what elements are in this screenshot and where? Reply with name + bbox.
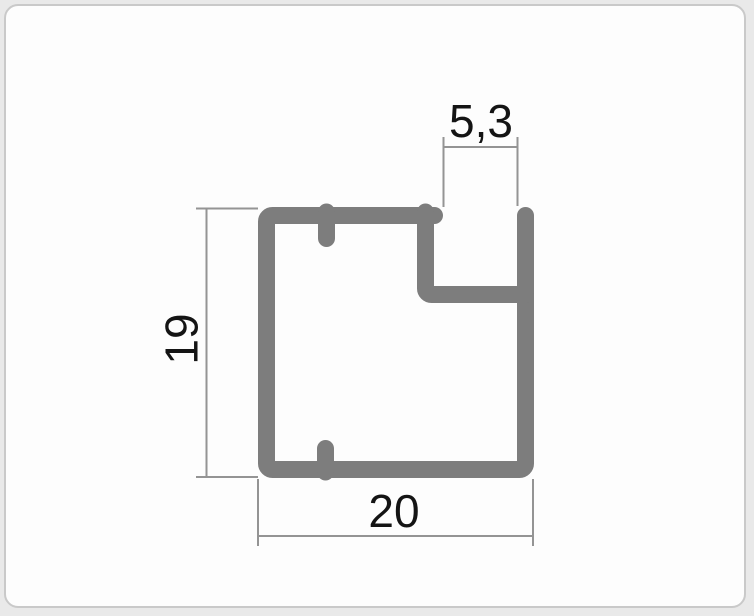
screenshot-root: 5,3 19 20: [0, 0, 754, 616]
dim-height-label: 19: [156, 313, 208, 364]
dimension-profile-height: 19: [156, 208, 259, 478]
dim-slot-label: 5,3: [449, 95, 513, 147]
profile-cross-section: [267, 212, 526, 472]
dimension-profile-width: 20: [257, 479, 534, 546]
dimension-slot-width: 5,3: [443, 95, 519, 207]
profile-outline-path: [267, 216, 526, 470]
dim-width-label: 20: [368, 485, 419, 537]
profile-slot-path: [426, 212, 526, 295]
profile-drawing: 5,3 19 20: [0, 0, 754, 616]
